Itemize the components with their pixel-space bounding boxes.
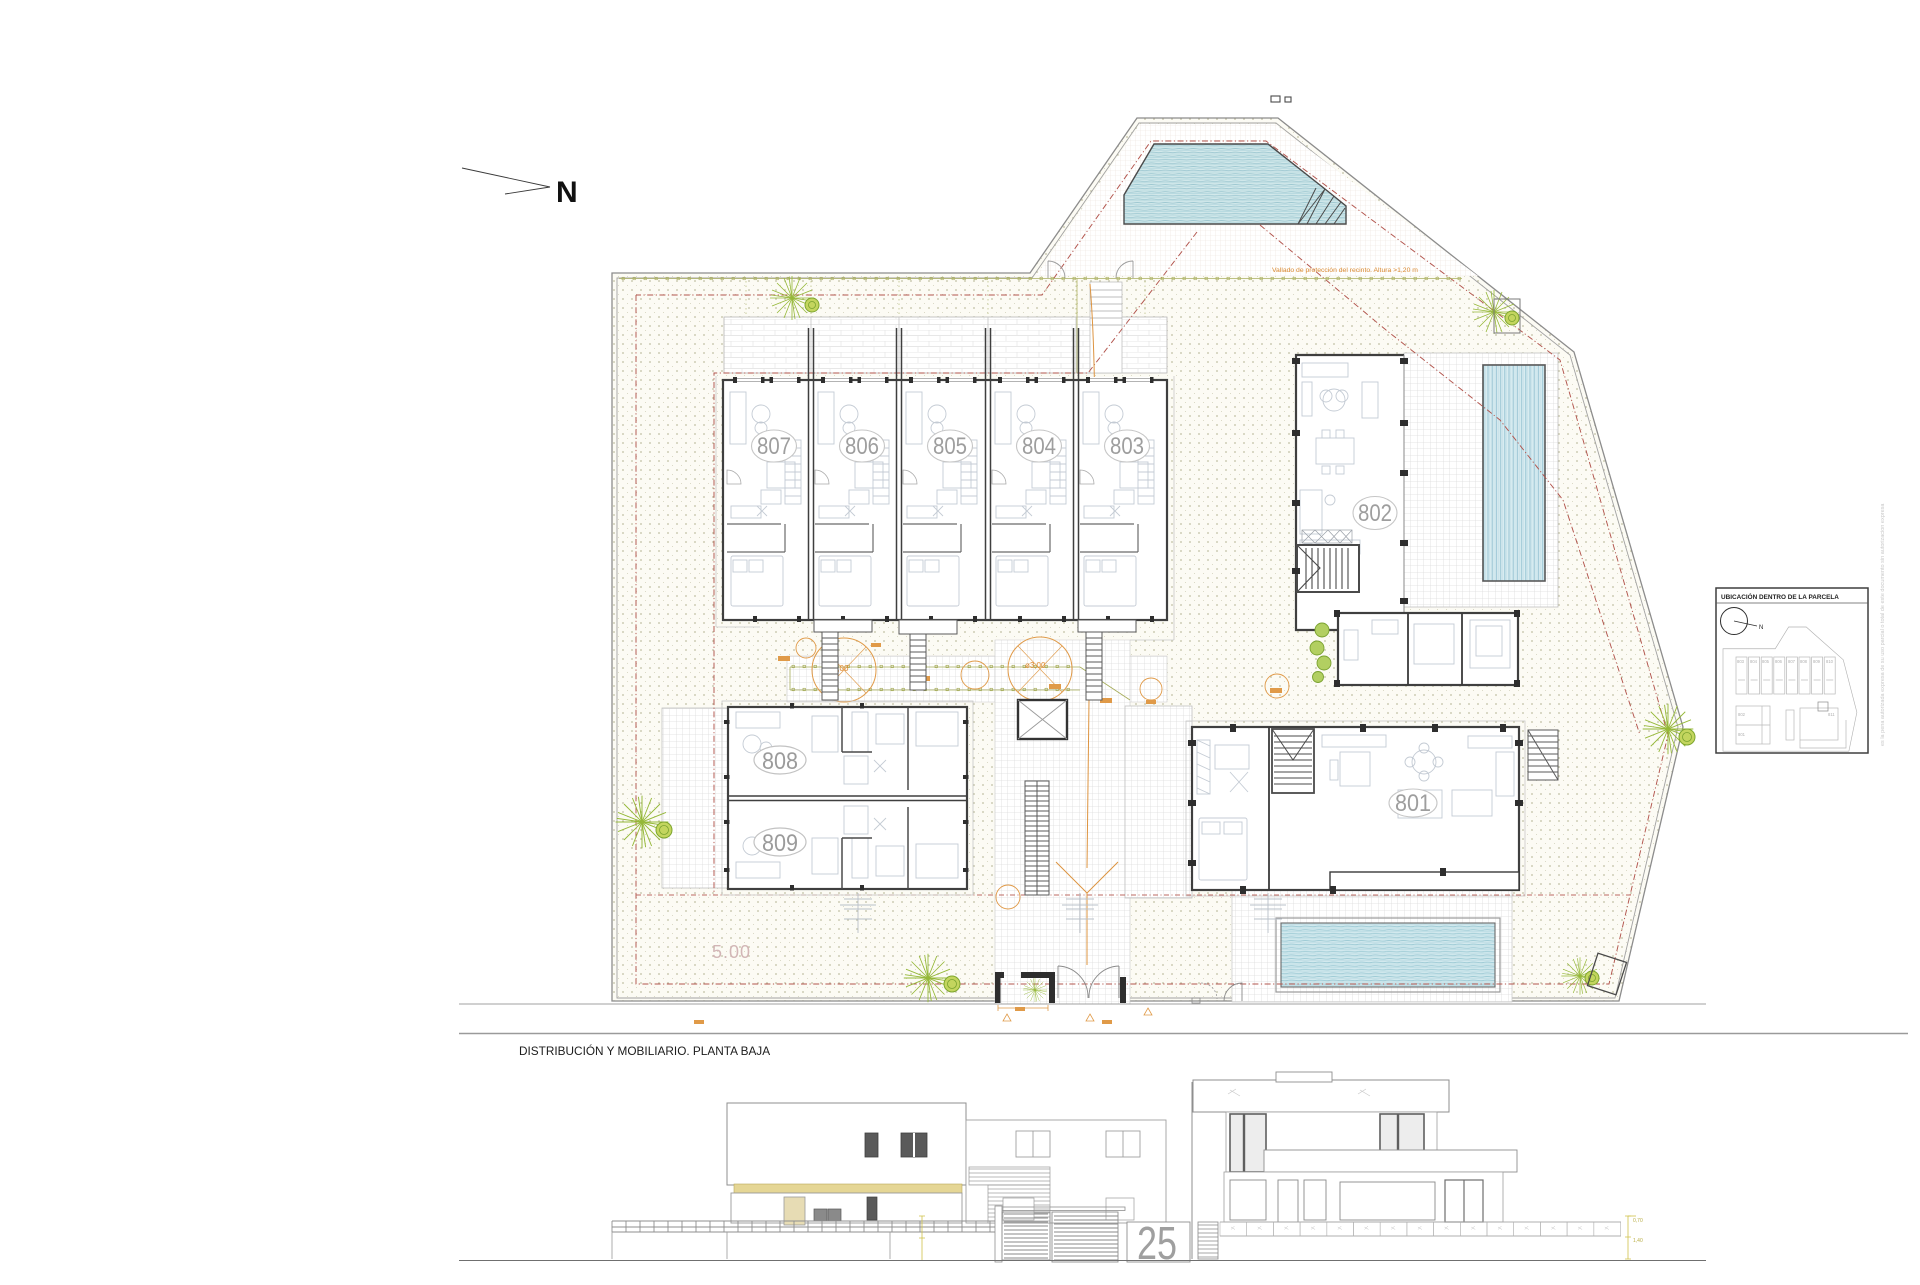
svg-text:803: 803 (1737, 659, 1745, 664)
svg-text:UBICACIÓN DENTRO DE LA PARCELA: UBICACIÓN DENTRO DE LA PARCELA (1721, 592, 1839, 601)
svg-text:5.00: 5.00 (712, 942, 751, 962)
svg-text:808: 808 (1800, 659, 1808, 664)
svg-text:810: 810 (1826, 659, 1834, 664)
svg-text:802: 802 (1358, 500, 1392, 527)
svg-text:808: 808 (762, 748, 798, 775)
svg-text:804: 804 (1750, 659, 1758, 664)
svg-text:809: 809 (762, 830, 798, 857)
svg-text:DISTRIBUCIÓN Y MOBILIARIO. PLA: DISTRIBUCIÓN Y MOBILIARIO. PLANTA BAJA (519, 1044, 770, 1058)
svg-text:801: 801 (1395, 790, 1431, 817)
svg-text:801: 801 (1738, 732, 1746, 737)
svg-text:804: 804 (1022, 433, 1056, 460)
svg-text:803: 803 (1110, 433, 1144, 460)
svg-text:806: 806 (845, 433, 879, 460)
svg-text:805: 805 (1762, 659, 1770, 664)
svg-text:N: N (556, 176, 578, 209)
svg-text:802: 802 (1738, 712, 1746, 717)
svg-text:es la pena autorizada expresa: es la pena autorizada expresa de su uso … (1880, 503, 1886, 746)
svg-text:ø3,00: ø3,00 (1025, 661, 1046, 670)
svg-text:811: 811 (1828, 712, 1835, 717)
svg-text:809: 809 (1813, 659, 1821, 664)
svg-text:1,40: 1,40 (1633, 1238, 1643, 1244)
svg-text:807: 807 (757, 433, 791, 460)
svg-text:0,70: 0,70 (1633, 1218, 1643, 1224)
svg-text:805: 805 (933, 433, 967, 460)
svg-text:806: 806 (1775, 659, 1783, 664)
svg-text:N: N (1759, 625, 1763, 631)
svg-text:25: 25 (1137, 1217, 1177, 1269)
svg-text:Vallado de protección del reci: Vallado de protección del recinto. Altur… (1272, 267, 1418, 274)
svg-text:807: 807 (1788, 659, 1796, 664)
